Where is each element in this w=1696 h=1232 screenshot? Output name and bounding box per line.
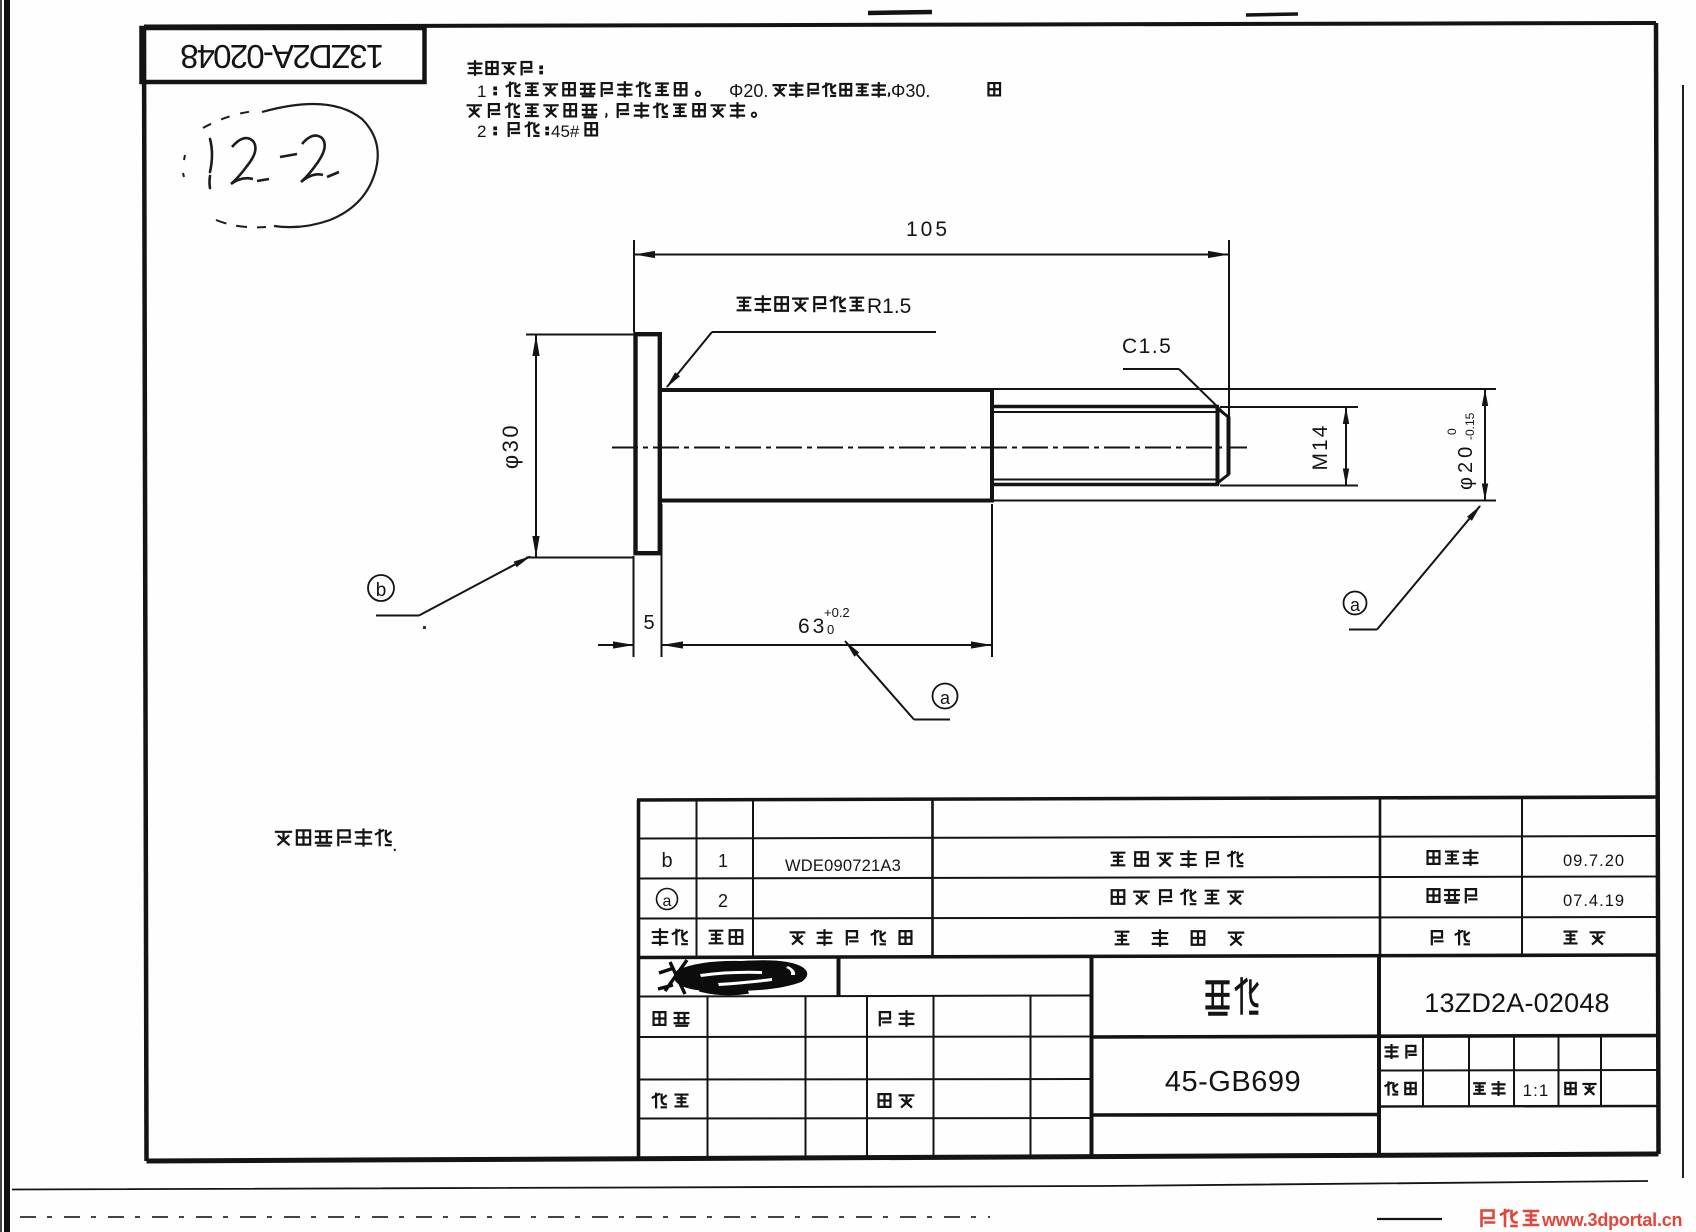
svg-text:0: 0: [1445, 428, 1459, 435]
svg-text:φ20: φ20: [1455, 443, 1477, 490]
svg-text:2: 2: [477, 122, 486, 141]
svg-text:+0.2: +0.2: [824, 605, 850, 620]
svg-text:105: 105: [906, 218, 950, 241]
svg-text:Φ30.: Φ30.: [891, 81, 930, 101]
svg-text:a: a: [940, 688, 951, 708]
svg-text:-0.15: -0.15: [1463, 412, 1477, 440]
svg-text:45#: 45#: [551, 122, 580, 141]
svg-text:2: 2: [718, 891, 728, 911]
svg-text:13ZD2A-02048: 13ZD2A-02048: [1424, 988, 1610, 1018]
svg-text:WDE090721A3: WDE090721A3: [785, 857, 901, 875]
svg-text:45-GB699: 45-GB699: [1165, 1066, 1301, 1098]
svg-text:09.7.20: 09.7.20: [1563, 852, 1625, 870]
svg-text:0: 0: [827, 622, 834, 637]
svg-text:www.3dportal.cn: www.3dportal.cn: [1541, 1210, 1682, 1230]
svg-text:07.4.19: 07.4.19: [1563, 892, 1625, 910]
svg-text:1: 1: [477, 82, 486, 101]
svg-text:1: 1: [718, 851, 728, 871]
svg-text:13ZD2A-02048: 13ZD2A-02048: [181, 38, 384, 75]
svg-text:b: b: [376, 580, 387, 601]
svg-text:R1.5: R1.5: [867, 295, 911, 318]
svg-text:φ30: φ30: [498, 423, 523, 469]
svg-text:Φ20.: Φ20.: [729, 81, 768, 101]
svg-text:.: .: [392, 834, 398, 856]
svg-text:a: a: [1350, 595, 1361, 615]
svg-text:63: 63: [798, 615, 827, 638]
svg-text:5: 5: [643, 612, 654, 634]
svg-text:M14: M14: [1309, 424, 1332, 471]
svg-text:a: a: [663, 893, 672, 910]
svg-text:C1.5: C1.5: [1122, 335, 1172, 358]
svg-text:b: b: [661, 850, 672, 872]
svg-text:1:1: 1:1: [1523, 1081, 1550, 1100]
